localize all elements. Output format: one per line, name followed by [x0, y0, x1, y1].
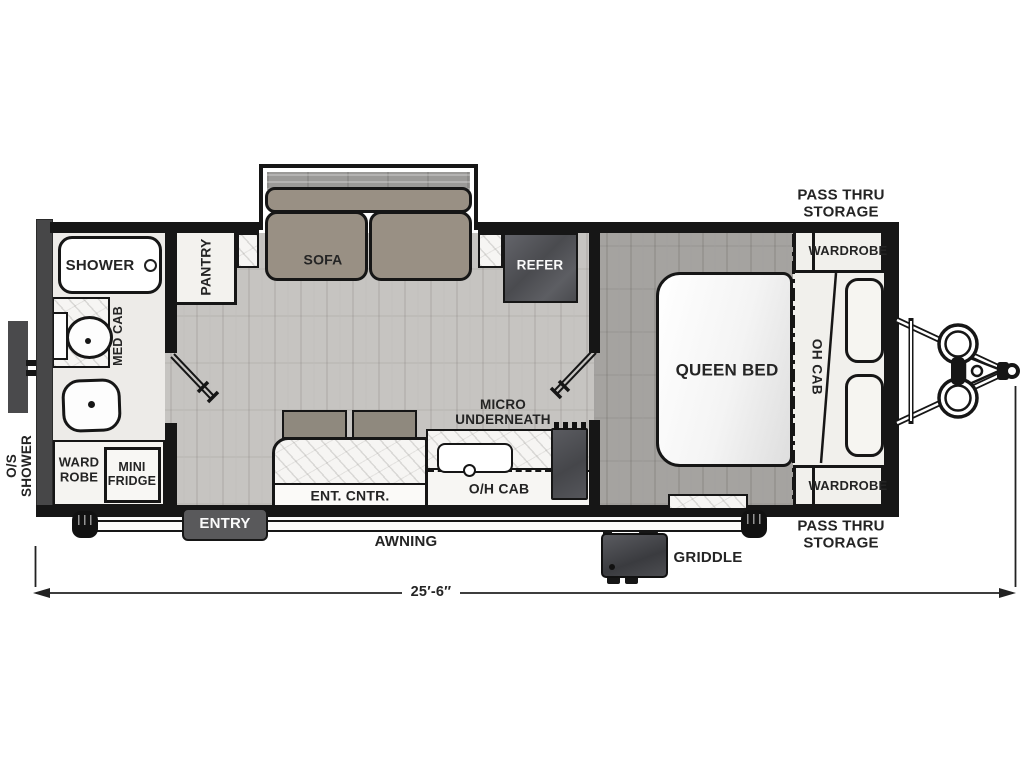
top-wall-left-segment [50, 222, 259, 233]
hitch-assembly-icon [897, 318, 1018, 424]
pass-thru-line2: STORAGE [797, 535, 884, 552]
oh-cab-kitchen-label: O/H CAB [469, 481, 530, 496]
griddle-label: GRIDDLE [674, 550, 743, 567]
micro-underneath-label: MICRO UNDERNEATH [455, 397, 551, 427]
sofa-seat-right [369, 211, 472, 281]
bed-step [668, 494, 748, 510]
mini-fridge-line2: FRIDGE [108, 474, 156, 488]
micro-line2: UNDERNEATH [455, 412, 551, 427]
os-shower-label: O/S SHOWER [4, 435, 34, 497]
shower-label: SHOWER [66, 258, 135, 275]
counter-stool-right [352, 410, 417, 439]
ward-robe-line1: WARD [59, 456, 100, 471]
bedroom-wall-lower [589, 420, 600, 517]
bathroom-wall-lower [165, 423, 177, 517]
overall-length-label: 25′-6″ [411, 585, 452, 601]
front-bunk-cushion-top [845, 278, 884, 363]
floorplan-canvas: SHOWER MED CAB PANTRY SOFA REFER QUEEN B… [0, 0, 1024, 768]
oh-cab-bedroom-label: OH CAB [809, 339, 824, 395]
os-shower-line2: SHOWER [19, 435, 34, 497]
pass-thru-storage-top-label: PASS THRU STORAGE [797, 188, 884, 221]
outside-shower-panel [8, 321, 28, 413]
bedroom-wall-upper [589, 230, 600, 353]
griddle-box [601, 533, 668, 578]
bath-sink-drain [85, 338, 91, 344]
toilet-drain [88, 401, 95, 408]
kitchen-faucet [463, 464, 476, 477]
awning-roller-left [72, 511, 98, 538]
refer-label: REFER [517, 259, 564, 274]
front-wall [884, 222, 899, 517]
counter-strip-left-of-sofa [237, 233, 259, 268]
rear-wall [36, 219, 53, 517]
sofa-back-cushion [265, 187, 472, 213]
awning-label: AWNING [375, 534, 438, 551]
sofa-label: SOFA [304, 252, 343, 267]
wardrobe-bottom-label: WARDROBE [809, 479, 888, 493]
pantry-label: PANTRY [198, 238, 213, 295]
entry-label: ENTRY [199, 516, 250, 533]
shower-drain-icon [144, 259, 157, 272]
os-shower-line1: O/S [4, 435, 19, 497]
mini-fridge-line1: MINI [108, 460, 156, 474]
counter-strip-right-of-sofa [478, 233, 503, 268]
awning-roller-right [741, 510, 767, 538]
pass-thru-line1: PASS THRU [797, 519, 884, 536]
counter-stool-left [282, 410, 347, 439]
mini-fridge-label: MINI FRIDGE [108, 460, 156, 488]
griddle-knob [609, 564, 615, 570]
pass-thru-storage-bottom-label: PASS THRU STORAGE [797, 519, 884, 552]
ward-robe-label: WARD ROBE [59, 456, 100, 485]
micro-line1: MICRO [455, 397, 551, 412]
cooktop-knobs [554, 422, 586, 430]
pass-thru-line2: STORAGE [797, 204, 884, 221]
wardrobe-top-label: WARDROBE [809, 244, 888, 258]
top-wall-right-segment [478, 222, 899, 233]
queen-bed-label: QUEEN BED [676, 362, 779, 381]
pass-thru-line1: PASS THRU [797, 188, 884, 205]
sofa-seat-left [265, 211, 368, 281]
ward-robe-line2: ROBE [59, 470, 100, 485]
ent-cntr-label: ENT. CNTR. [311, 488, 390, 503]
bathroom-wall-upper [165, 227, 177, 353]
front-bunk-cushion-bottom [845, 374, 884, 457]
cooktop [551, 428, 588, 500]
med-cab-label: MED CAB [112, 306, 126, 366]
